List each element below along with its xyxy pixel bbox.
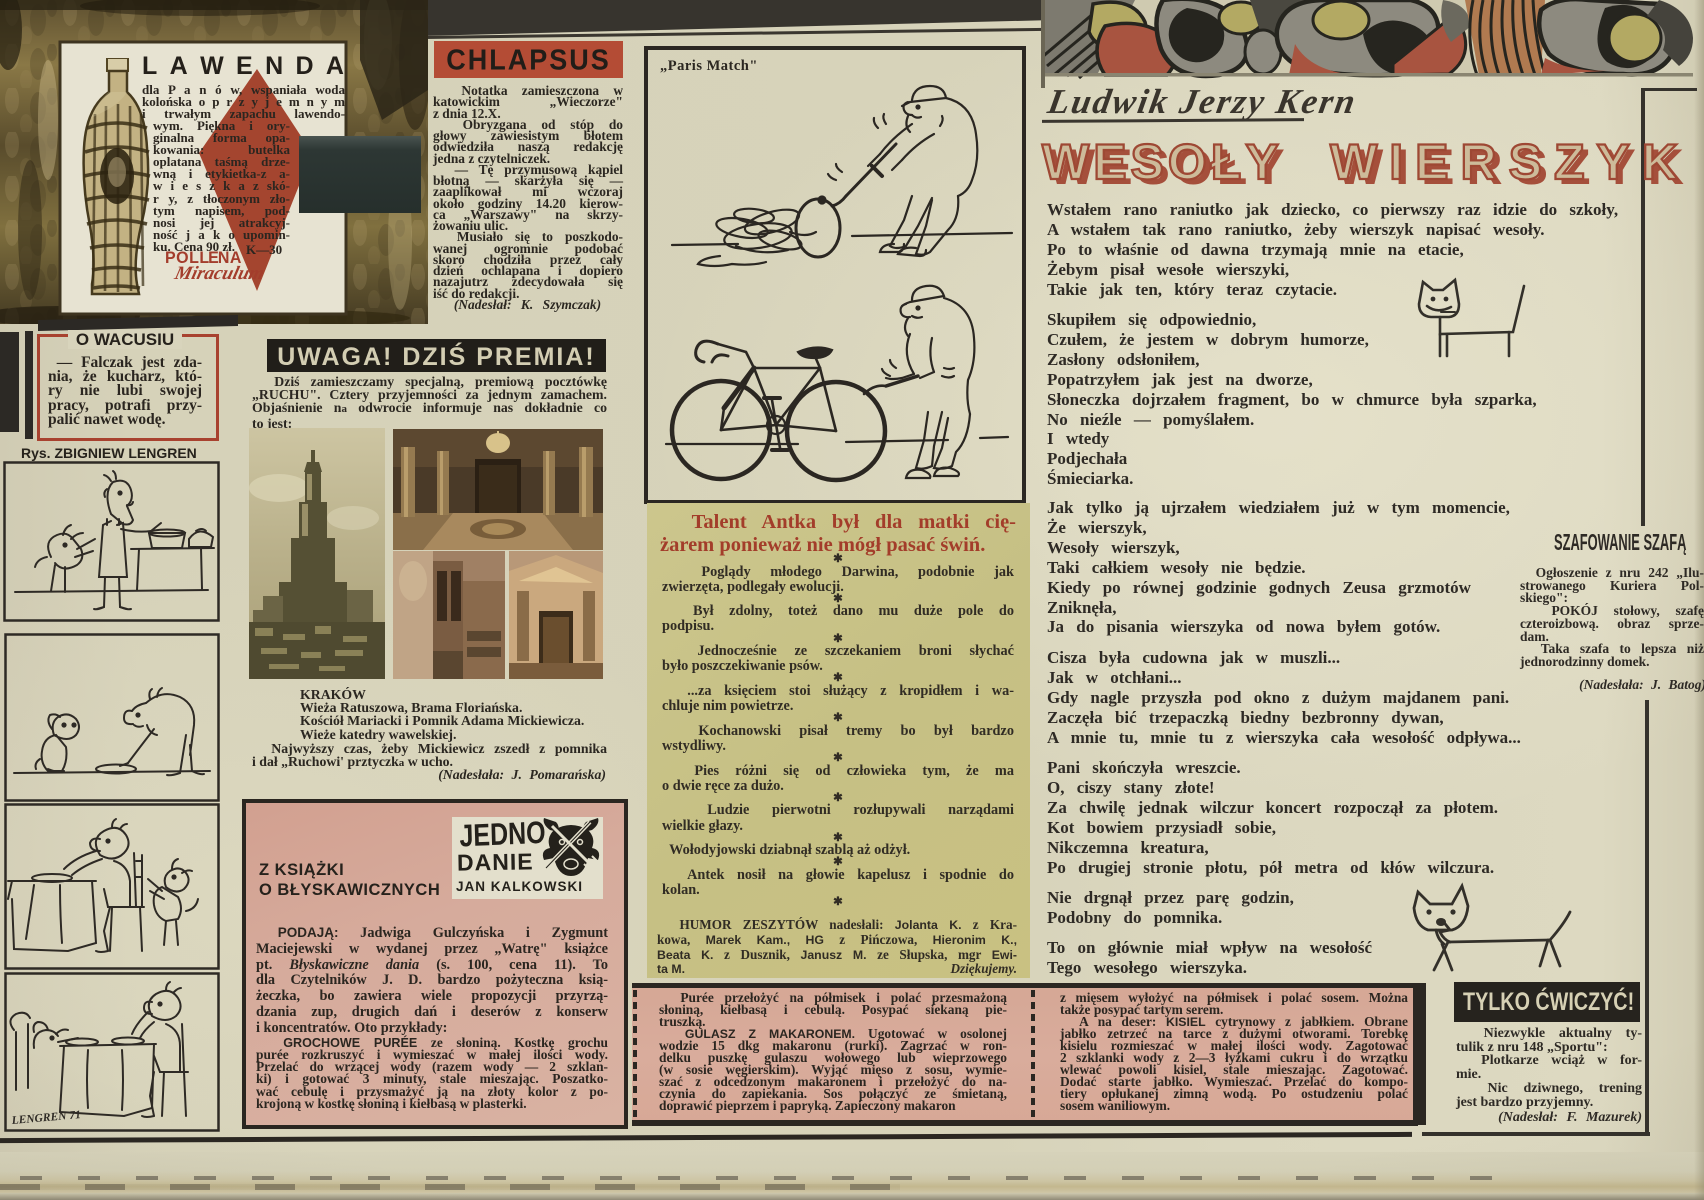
svg-text:LENGREN 71: LENGREN 71 [10, 1109, 81, 1127]
